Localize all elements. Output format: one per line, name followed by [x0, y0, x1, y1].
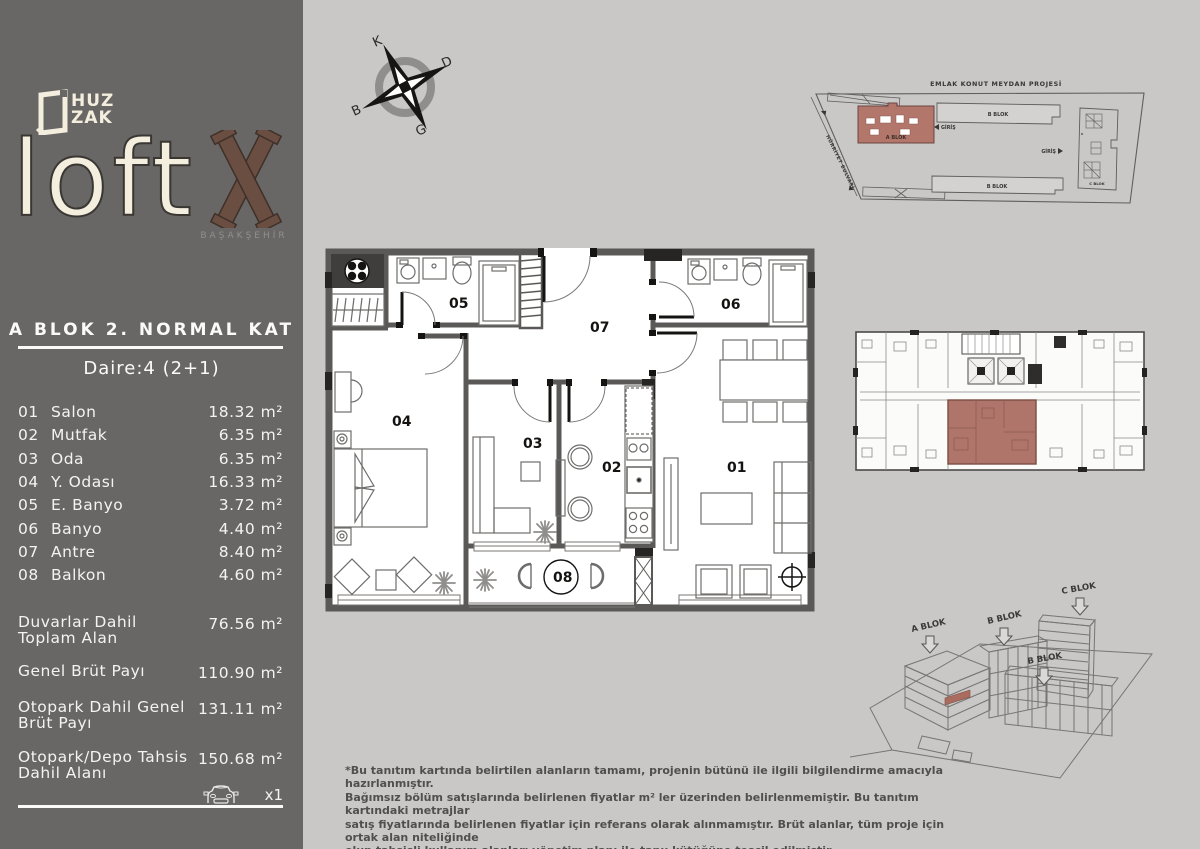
- svg-text:GİRİŞ: GİRİŞ: [1041, 148, 1056, 155]
- site-c-blok: C BLOK: [1078, 108, 1118, 190]
- total-value: 131.11 m²: [198, 700, 283, 718]
- key-plan-highlighted-unit: [948, 400, 1036, 464]
- total-label-line: Duvarlar Dahil: [18, 614, 137, 630]
- compass-rose: K D B G: [348, 24, 463, 142]
- room-list-row: 03 Oda 6.35 m²: [18, 450, 283, 472]
- room-number: 01: [18, 403, 39, 421]
- total-label-line: Dahil Alanı: [18, 765, 188, 781]
- site-plan-title: EMLAK KONUT MEYDAN PROJESİ: [930, 79, 1062, 88]
- room-area: 16.33 m²: [208, 473, 283, 491]
- svg-text:B BLOK: B BLOK: [987, 184, 1009, 190]
- room-area: 8.40 m²: [219, 543, 283, 561]
- site-a-blok: A BLOK: [858, 103, 934, 143]
- room-list-row: 06 Banyo 4.40 m²: [18, 520, 283, 542]
- compass-north-label: K: [371, 33, 385, 50]
- room-label-08: 08: [553, 570, 572, 586]
- svg-text:GİRİŞ: GİRİŞ: [941, 124, 956, 131]
- brand-loft: loft: [12, 118, 196, 240]
- title-divider: [18, 346, 283, 349]
- axon-b-blok2-label: B BLOK: [1027, 651, 1063, 667]
- total-label-line: Toplam Alan: [18, 630, 137, 646]
- room-label-03: 03: [523, 436, 542, 452]
- room-area: 4.60 m²: [219, 566, 283, 584]
- room-label-04: 04: [392, 414, 412, 430]
- svg-text:C BLOK: C BLOK: [1089, 181, 1106, 186]
- room-name: Salon: [51, 403, 96, 421]
- total-value: 150.68 m²: [198, 750, 283, 768]
- room-name: Oda: [51, 450, 84, 468]
- svg-text:HÜRRİYET BULVARI: HÜRRİYET BULVARI: [824, 134, 856, 190]
- plant-icon: [474, 569, 496, 591]
- room-name: Y. Odası: [51, 473, 115, 491]
- sidebar: HUZ ZAK loft BAŞAKŞEHİR A BLOK 2. NORMAL…: [0, 0, 303, 849]
- site-giris-left: GİRİŞ: [934, 124, 956, 131]
- room-list-row: 05 E. Banyo 3.72 m²: [18, 496, 283, 518]
- room-number: 03: [18, 450, 39, 468]
- plant-icon: [534, 521, 556, 543]
- room-list-row: 02 Mutfak 6.35 m²: [18, 426, 283, 448]
- total-label: Otopark Dahil Genel Brüt Payı: [18, 699, 185, 731]
- room-area: 18.32 m²: [208, 403, 283, 421]
- key-plan: [850, 328, 1150, 474]
- brochure-page: HUZ ZAK loft BAŞAKŞEHİR A BLOK 2. NORMAL…: [0, 0, 1200, 849]
- room-list-row: 04 Y. Odası 16.33 m²: [18, 473, 283, 495]
- room-list-row: 08 Balkon 4.60 m²: [18, 566, 283, 588]
- room-name: Antre: [51, 543, 96, 561]
- room-name: E. Banyo: [51, 496, 123, 514]
- axon-b-blok-label: B BLOK: [986, 609, 1023, 627]
- car-front-icon: [203, 783, 239, 806]
- total-value: 110.90 m²: [198, 664, 283, 682]
- room-list-row: 01 Salon 18.32 m²: [18, 403, 283, 425]
- total-label-line: Otopark Dahil Genel: [18, 699, 185, 715]
- page-title: A BLOK 2. NORMAL KAT: [0, 320, 303, 340]
- total-label-line: Brüt Payı: [18, 715, 185, 731]
- hatched-wall: [520, 254, 542, 328]
- total-value: 76.56 m²: [208, 615, 283, 633]
- room-area: 3.72 m²: [219, 496, 283, 514]
- brand-city: BAŞAKŞEHİR: [198, 231, 290, 241]
- total-label-line: Otopark/Depo Tahsis: [18, 749, 188, 765]
- room-area: 6.35 m²: [219, 450, 283, 468]
- svg-text:B BLOK: B BLOK: [988, 112, 1010, 118]
- disclaimer-line: olup tahsisli kullanım alanları yönetim …: [345, 844, 955, 849]
- total-label: Duvarlar Dahil Toplam Alan: [18, 614, 137, 646]
- site-plan: EMLAK KONUT MEYDAN PROJESİ HÜRRİYET BULV…: [800, 72, 1160, 212]
- site-b-blok-bottom: B BLOK: [932, 176, 1063, 194]
- disclaimer-line: *Bu tanıtım kartında belirtilen alanları…: [345, 764, 955, 791]
- room-name: Balkon: [51, 566, 106, 584]
- room-label-06: 06: [721, 297, 740, 313]
- axon-a-blok-label: A BLOK: [910, 617, 947, 635]
- room-number: 06: [18, 520, 39, 538]
- room-number: 07: [18, 543, 39, 561]
- parking-count: x1: [265, 786, 283, 804]
- site-giris-right: GİRİŞ: [1041, 148, 1063, 155]
- disclaimer-line: Bağımsız bölüm satışlarında belirlenen f…: [345, 791, 955, 818]
- room-area: 6.35 m²: [219, 426, 283, 444]
- room-number: 04: [18, 473, 39, 491]
- compass-south-label: G: [414, 122, 429, 140]
- room-name: Banyo: [51, 520, 102, 538]
- disclaimer-line: satış fiyatlarında belirlenen fiyatlar i…: [345, 818, 955, 845]
- room-list-row: 07 Antre 8.40 m²: [18, 543, 283, 565]
- room-area: 4.40 m²: [219, 520, 283, 538]
- total-label: Genel Brüt Payı: [18, 663, 145, 679]
- compass-west-label: B: [350, 102, 364, 119]
- plant-icon: [433, 572, 455, 594]
- room-label-02: 02: [602, 460, 621, 476]
- axon-c-blok-label: C BLOK: [1061, 581, 1097, 597]
- room-name: Mutfak: [51, 426, 107, 444]
- room-label-01: 01: [727, 460, 746, 476]
- axon-view: A BLOK B BLOK C BLOK B BLOK: [850, 558, 1170, 793]
- svg-text:A BLOK: A BLOK: [886, 135, 908, 141]
- room-number: 02: [18, 426, 39, 444]
- total-label-line: Genel Brüt Payı: [18, 663, 145, 679]
- balcony-column: [635, 557, 652, 605]
- total-label: Otopark/Depo Tahsis Dahil Alanı: [18, 749, 188, 781]
- site-b-blok-top: B BLOK: [937, 103, 1060, 124]
- room-label-07: 07: [590, 320, 609, 336]
- street-label: HÜRRİYET BULVARI: [821, 109, 857, 192]
- x-timber-logo: [202, 130, 290, 228]
- room-number: 05: [18, 496, 39, 514]
- room-label-05: 05: [449, 296, 468, 312]
- room-number: 08: [18, 566, 39, 584]
- shaft-fan: [331, 254, 384, 288]
- bottom-divider: [18, 805, 283, 808]
- compass-star: [348, 24, 463, 142]
- floor-plan: 01 02 03 04 05 06 07 08: [322, 246, 820, 618]
- unit-subtitle: Daire:4 (2+1): [0, 358, 303, 379]
- disclaimer: *Bu tanıtım kartında belirtilen alanları…: [345, 764, 955, 849]
